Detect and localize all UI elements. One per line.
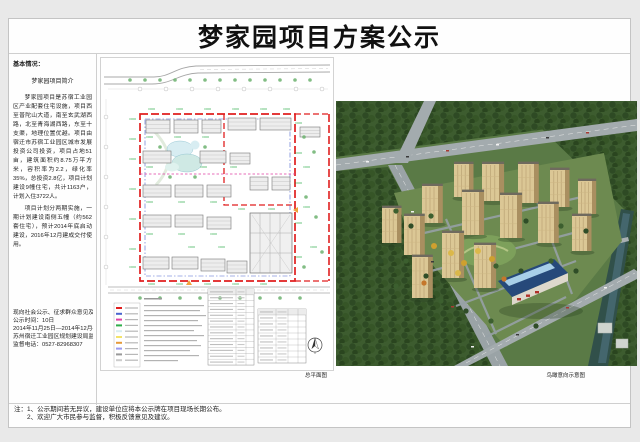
notice-line: 公示时间：10日	[13, 317, 93, 325]
project-intro-paragraph-1: 梦家园项目是苏宿工业园区产业配套住宅设施，项目西至普陀山大道，南至玄武湖西路，北…	[13, 94, 92, 202]
footnotes-section: 注：1、公示期间若无异议，建设单位应将本公示牌在项目现场长期公布。 2、欢迎广大…	[9, 403, 630, 427]
aerial-rendering-caption: 鸟瞰意向示意图	[336, 371, 637, 379]
poster-title: 梦家园项目方案公示	[198, 18, 441, 54]
notice-poster: 梦家园项目方案公示 基本情况： 梦家园项目简介 梦家园项目是苏宿工业园区产业配套…	[8, 18, 631, 428]
notice-line: 监督电话：0527-82968307	[13, 341, 93, 349]
screenshot-root: { "page": { "title": "梦家园项目方案公示" }, "lef…	[0, 0, 640, 442]
basic-info-heading: 基本情况：	[13, 60, 92, 69]
project-intro-heading: 梦家园项目简介	[13, 78, 92, 87]
site-plan-drawing	[100, 57, 334, 371]
aerial-rendering-panel	[336, 101, 637, 366]
project-intro-paragraph-2: 项目计划分两期实施，一期计划建设南侧五幢（约562套住宅），预计2014年底启动…	[13, 205, 92, 250]
poster-title-bar: 梦家园项目方案公示	[9, 19, 630, 54]
notice-line: 2014年11月25日—2014年12月4日	[13, 325, 93, 333]
basic-info-panel: 基本情况： 梦家园项目简介 梦家园项目是苏宿工业园区产业配套住宅设施，项目西至普…	[9, 53, 97, 405]
footnote-line-2: 2、欢迎广大市民参与监督，积极反馈意见及建议。	[14, 414, 626, 422]
aerial-rendering-image	[336, 101, 637, 366]
notice-line: 苏州宿迁工业园区规划建设局监制	[13, 333, 93, 341]
notice-line: 现向社会公示、征求群众意见及建议	[13, 309, 93, 317]
public-notice-block: 现向社会公示、征求群众意见及建议 公示时间：10日 2014年11月25日—20…	[13, 309, 93, 349]
site-plan-panel	[100, 57, 334, 371]
footnote-line-1: 注：1、公示期间若无异议，建设单位应将本公示牌在项目现场长期公布。	[14, 406, 626, 414]
site-plan-caption: 总平面图	[100, 371, 334, 379]
